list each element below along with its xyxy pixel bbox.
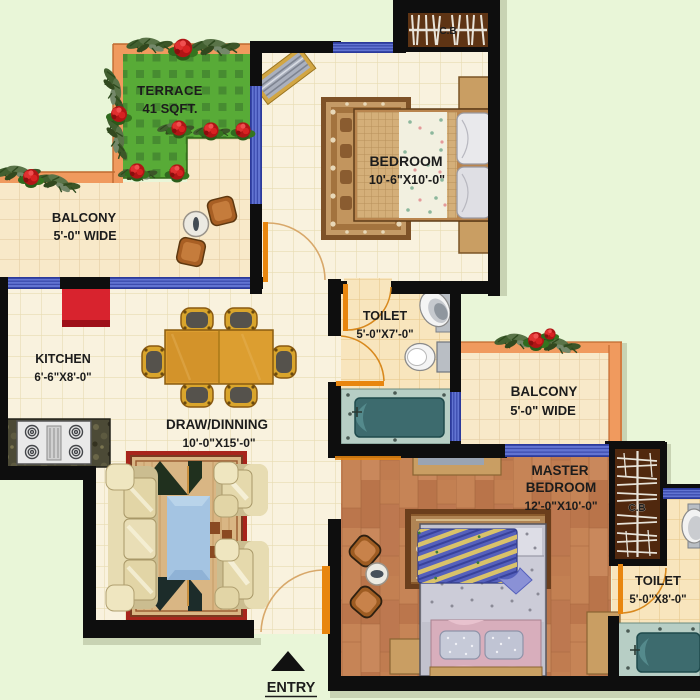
svg-text:BALCONY: BALCONY [52,210,117,225]
svg-text:5'-0"X8'-0": 5'-0"X8'-0" [629,594,686,606]
svg-text:5'-0" WIDE: 5'-0" WIDE [53,229,116,243]
svg-text:BEDROOM: BEDROOM [526,480,597,495]
svg-text:MASTER: MASTER [532,463,589,478]
svg-text:12'-0"X10'-0": 12'-0"X10'-0" [524,499,597,513]
svg-text:5'-0"X7'-0": 5'-0"X7'-0" [356,329,413,341]
svg-text:KITCHEN: KITCHEN [35,352,91,366]
svg-text:10'-0"X15'-0": 10'-0"X15'-0" [182,436,255,450]
svg-text:C.B: C.B [439,26,456,37]
svg-text:5'-0" WIDE: 5'-0" WIDE [510,403,576,418]
svg-text:TOILET: TOILET [363,309,408,323]
svg-text:6'-6"X8'-0": 6'-6"X8'-0" [34,372,91,384]
svg-text:BEDROOM: BEDROOM [369,153,442,169]
svg-text:DRAW/DINNING: DRAW/DINNING [166,417,268,432]
svg-text:BALCONY: BALCONY [511,384,578,399]
svg-text:TERRACE: TERRACE [137,83,203,98]
svg-text:ENTRY: ENTRY [267,680,316,696]
svg-text:C.B: C.B [628,503,645,514]
svg-text:TOILET: TOILET [635,573,681,588]
svg-text:10'-6"X10'-0": 10'-6"X10'-0" [369,173,445,187]
svg-text:41 SQFT.: 41 SQFT. [143,101,198,116]
